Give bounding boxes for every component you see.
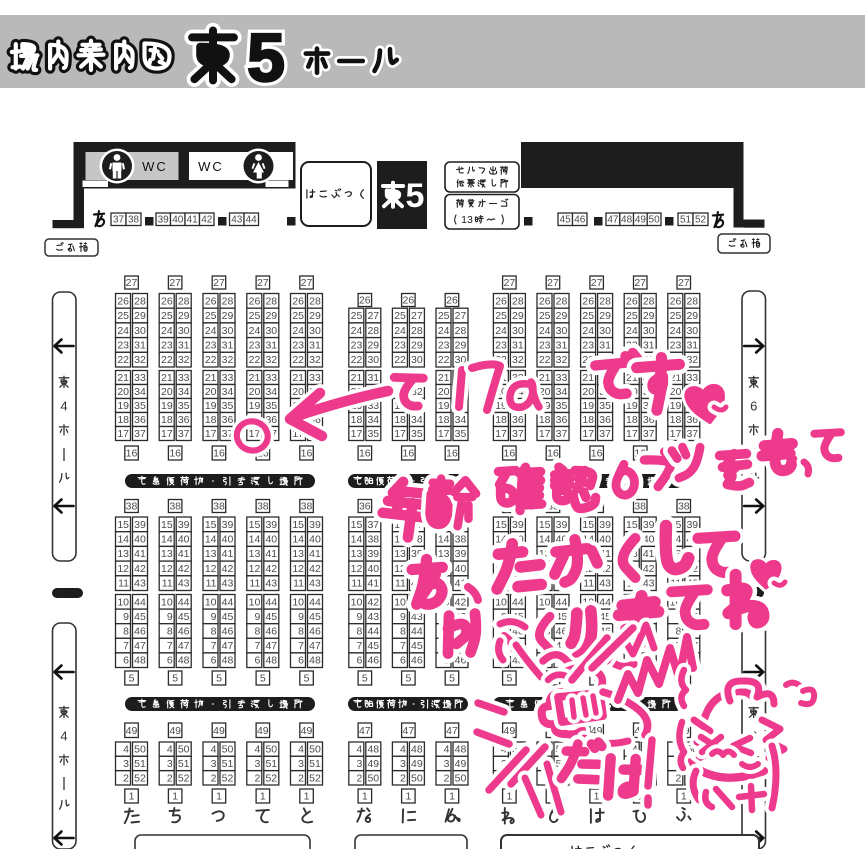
svg-text:29: 29 — [599, 310, 611, 322]
svg-text:45: 45 — [309, 611, 321, 623]
svg-text:37: 37 — [113, 214, 125, 225]
svg-text:28: 28 — [556, 295, 568, 307]
svg-text:5: 5 — [406, 177, 425, 215]
svg-text:8: 8 — [211, 626, 217, 638]
svg-text:38: 38 — [169, 501, 181, 513]
svg-text:18: 18 — [351, 414, 363, 426]
svg-text:40: 40 — [599, 534, 611, 546]
svg-text:51: 51 — [265, 758, 277, 770]
svg-text:1: 1 — [172, 791, 178, 803]
svg-text:41: 41 — [178, 548, 190, 560]
svg-text:44: 44 — [411, 626, 423, 638]
svg-text:43: 43 — [231, 214, 243, 225]
svg-text:11: 11 — [351, 578, 362, 590]
svg-text:36: 36 — [599, 414, 611, 426]
svg-text:17: 17 — [495, 428, 507, 440]
svg-text:46: 46 — [134, 626, 146, 638]
svg-text:39: 39 — [556, 519, 568, 531]
svg-text:2: 2 — [167, 772, 173, 784]
svg-text:26: 26 — [539, 295, 551, 307]
svg-text:7: 7 — [167, 640, 173, 652]
svg-text:43: 43 — [134, 578, 146, 590]
svg-text:18: 18 — [438, 414, 450, 426]
svg-text:19: 19 — [582, 400, 594, 412]
svg-text:49: 49 — [169, 725, 181, 737]
svg-text:28: 28 — [512, 295, 524, 307]
svg-text:26: 26 — [359, 295, 371, 307]
svg-text:5: 5 — [129, 673, 135, 685]
svg-text:26: 26 — [161, 295, 173, 307]
svg-text:23: 23 — [117, 340, 129, 352]
svg-text:21: 21 — [539, 372, 551, 384]
svg-text:10: 10 — [161, 596, 173, 608]
svg-text:26: 26 — [403, 295, 415, 307]
svg-text:47: 47 — [178, 640, 190, 652]
svg-text:48: 48 — [411, 744, 423, 756]
svg-text:3: 3 — [211, 758, 217, 770]
svg-text:28: 28 — [455, 325, 467, 337]
svg-text:39: 39 — [178, 519, 190, 531]
svg-text:27: 27 — [411, 310, 423, 322]
svg-text:39: 39 — [512, 519, 524, 531]
svg-text:30: 30 — [265, 325, 277, 337]
svg-text:38: 38 — [678, 501, 690, 513]
svg-text:19: 19 — [670, 400, 682, 412]
svg-text:26: 26 — [205, 295, 217, 307]
svg-text:38: 38 — [634, 501, 646, 513]
svg-text:9: 9 — [123, 611, 129, 623]
svg-text:20: 20 — [161, 386, 173, 398]
svg-text:45: 45 — [134, 611, 146, 623]
svg-text:31: 31 — [599, 340, 611, 352]
svg-text:46: 46 — [574, 214, 586, 225]
svg-text:44: 44 — [178, 596, 190, 608]
svg-text:46: 46 — [309, 626, 321, 638]
svg-text:7: 7 — [211, 640, 217, 652]
svg-text:18: 18 — [539, 414, 551, 426]
svg-text:24: 24 — [205, 325, 217, 337]
svg-text:50: 50 — [134, 744, 146, 756]
svg-text:48: 48 — [134, 655, 146, 667]
svg-text:42: 42 — [222, 563, 234, 575]
svg-text:17: 17 — [394, 428, 406, 440]
svg-text:23: 23 — [249, 340, 261, 352]
svg-text:29: 29 — [134, 310, 146, 322]
svg-text:27: 27 — [504, 277, 516, 289]
svg-text:30: 30 — [512, 325, 524, 337]
svg-text:42: 42 — [201, 214, 213, 225]
svg-text:7: 7 — [123, 640, 129, 652]
svg-text:5: 5 — [247, 20, 285, 96]
svg-text:18: 18 — [495, 414, 507, 426]
svg-text:27: 27 — [257, 277, 269, 289]
svg-text:7: 7 — [356, 640, 362, 652]
svg-text:9: 9 — [211, 611, 217, 623]
svg-text:37: 37 — [134, 428, 146, 440]
svg-text:30: 30 — [178, 325, 190, 337]
svg-text:31: 31 — [265, 340, 277, 352]
svg-text:29: 29 — [222, 310, 234, 322]
svg-text:10: 10 — [205, 596, 217, 608]
svg-text:19: 19 — [161, 400, 173, 412]
svg-text:46: 46 — [411, 655, 423, 667]
svg-text:30: 30 — [222, 325, 234, 337]
svg-text:2: 2 — [211, 772, 217, 784]
svg-text:25: 25 — [670, 310, 682, 322]
svg-text:23: 23 — [161, 340, 173, 352]
svg-text:20: 20 — [438, 386, 450, 398]
svg-text:31: 31 — [222, 340, 234, 352]
svg-text:52: 52 — [265, 772, 277, 784]
svg-text:47: 47 — [222, 640, 234, 652]
svg-text:1: 1 — [681, 791, 687, 803]
svg-text:17: 17 — [539, 428, 551, 440]
svg-text:29: 29 — [309, 310, 321, 322]
svg-text:40: 40 — [222, 534, 234, 546]
svg-text:26: 26 — [495, 295, 507, 307]
svg-text:20: 20 — [117, 386, 129, 398]
svg-text:12: 12 — [351, 563, 363, 575]
svg-text:15: 15 — [539, 519, 551, 531]
svg-text:25: 25 — [394, 310, 406, 322]
svg-text:25: 25 — [161, 310, 173, 322]
svg-text:13: 13 — [394, 548, 406, 560]
svg-text:37: 37 — [599, 428, 611, 440]
svg-text:48: 48 — [222, 655, 234, 667]
svg-text:48: 48 — [621, 214, 633, 225]
svg-text:28: 28 — [599, 295, 611, 307]
svg-text:37: 37 — [686, 428, 698, 440]
svg-text:15: 15 — [292, 519, 304, 531]
svg-text:28: 28 — [265, 295, 277, 307]
svg-text:42: 42 — [265, 563, 277, 575]
svg-text:9: 9 — [254, 611, 260, 623]
svg-text:46: 46 — [178, 626, 190, 638]
svg-text:32: 32 — [178, 354, 190, 366]
svg-text:WC: WC — [198, 159, 224, 174]
svg-text:11: 11 — [583, 578, 594, 590]
svg-text:51: 51 — [222, 758, 234, 770]
svg-text:34: 34 — [455, 414, 467, 426]
svg-text:49: 49 — [301, 725, 313, 737]
svg-text:17: 17 — [205, 428, 217, 440]
svg-text:22: 22 — [205, 354, 217, 366]
svg-text:16: 16 — [359, 448, 371, 460]
svg-text:22: 22 — [394, 354, 406, 366]
svg-text:39: 39 — [643, 519, 655, 531]
svg-text:4: 4 — [356, 744, 362, 756]
svg-text:21: 21 — [438, 372, 450, 384]
svg-text:18: 18 — [205, 414, 217, 426]
svg-text:26: 26 — [292, 295, 304, 307]
svg-text:37: 37 — [512, 428, 524, 440]
svg-text:25: 25 — [495, 310, 507, 322]
svg-text:5: 5 — [260, 673, 266, 685]
svg-text:13: 13 — [117, 548, 129, 560]
svg-text:26: 26 — [117, 295, 129, 307]
svg-text:14: 14 — [351, 534, 363, 546]
svg-text:41: 41 — [309, 548, 321, 560]
svg-text:16: 16 — [446, 448, 458, 460]
svg-text:1: 1 — [216, 791, 222, 803]
svg-text:27: 27 — [591, 277, 603, 289]
svg-text:27: 27 — [455, 310, 467, 322]
svg-text:30: 30 — [134, 325, 146, 337]
svg-text:28: 28 — [178, 295, 190, 307]
svg-text:12: 12 — [205, 563, 217, 575]
svg-text:25: 25 — [292, 310, 304, 322]
svg-text:4: 4 — [60, 729, 67, 744]
svg-text:19: 19 — [249, 400, 261, 412]
svg-text:46: 46 — [222, 626, 234, 638]
svg-text:13: 13 — [461, 214, 473, 226]
svg-text:3: 3 — [298, 758, 304, 770]
svg-text:23: 23 — [292, 340, 304, 352]
svg-text:4: 4 — [167, 744, 173, 756]
svg-text:5: 5 — [216, 673, 222, 685]
svg-text:34: 34 — [134, 386, 146, 398]
svg-text:17: 17 — [438, 428, 450, 440]
svg-text:16: 16 — [126, 448, 138, 460]
svg-text:40: 40 — [367, 563, 379, 575]
svg-text:31: 31 — [643, 340, 655, 352]
svg-text:42: 42 — [643, 563, 655, 575]
svg-text:4: 4 — [254, 744, 260, 756]
svg-text:35: 35 — [222, 400, 234, 412]
svg-text:5: 5 — [172, 673, 178, 685]
svg-text:12: 12 — [117, 563, 129, 575]
svg-text:15: 15 — [205, 519, 217, 531]
svg-text:14: 14 — [249, 534, 261, 546]
svg-text:21: 21 — [292, 372, 304, 384]
svg-text:24: 24 — [495, 325, 507, 337]
svg-text:52: 52 — [134, 772, 146, 784]
svg-text:44: 44 — [222, 596, 234, 608]
svg-text:17: 17 — [117, 428, 129, 440]
svg-text:23: 23 — [205, 340, 217, 352]
svg-text:49: 49 — [367, 758, 379, 770]
svg-text:34: 34 — [556, 386, 568, 398]
svg-text:31: 31 — [686, 340, 698, 352]
svg-text:31: 31 — [178, 340, 190, 352]
svg-text:44: 44 — [246, 214, 258, 225]
svg-text:47: 47 — [265, 640, 277, 652]
svg-text:39: 39 — [599, 519, 611, 531]
svg-text:23: 23 — [394, 339, 406, 351]
svg-text:11: 11 — [395, 578, 406, 590]
svg-text:34: 34 — [265, 386, 277, 398]
svg-text:6: 6 — [254, 655, 260, 667]
svg-text:17: 17 — [670, 428, 682, 440]
svg-text:38: 38 — [367, 534, 379, 546]
svg-text:24: 24 — [582, 325, 594, 337]
svg-text:23: 23 — [351, 339, 363, 351]
svg-text:28: 28 — [134, 295, 146, 307]
svg-text:1: 1 — [405, 791, 411, 803]
svg-text:3: 3 — [444, 758, 450, 770]
svg-text:28: 28 — [222, 295, 234, 307]
svg-text:35: 35 — [455, 428, 467, 440]
svg-text:48: 48 — [265, 655, 277, 667]
svg-text:44: 44 — [556, 596, 568, 608]
svg-text:24: 24 — [117, 325, 129, 337]
svg-text:22: 22 — [249, 354, 261, 366]
svg-text:43: 43 — [367, 611, 379, 623]
svg-text:5: 5 — [304, 673, 310, 685]
svg-text:2: 2 — [444, 772, 450, 784]
svg-text:38: 38 — [128, 214, 140, 225]
svg-text:25: 25 — [438, 310, 450, 322]
svg-text:38: 38 — [455, 534, 467, 546]
svg-text:35: 35 — [134, 400, 146, 412]
svg-text:32: 32 — [309, 354, 321, 366]
svg-text:45: 45 — [222, 611, 234, 623]
svg-text:6: 6 — [167, 655, 173, 667]
svg-text:26: 26 — [249, 295, 261, 307]
svg-text:27: 27 — [126, 277, 138, 289]
svg-text:21: 21 — [249, 372, 261, 384]
svg-text:47: 47 — [134, 640, 146, 652]
svg-text:19: 19 — [117, 400, 129, 412]
svg-text:38: 38 — [257, 501, 269, 513]
svg-text:15: 15 — [249, 519, 261, 531]
svg-text:36: 36 — [134, 414, 146, 426]
svg-text:11: 11 — [249, 578, 260, 590]
svg-text:6: 6 — [750, 399, 757, 414]
svg-text:8: 8 — [356, 626, 362, 638]
svg-text:52: 52 — [695, 214, 707, 225]
svg-text:49: 49 — [635, 214, 647, 225]
svg-text:22: 22 — [539, 354, 551, 366]
svg-text:4: 4 — [298, 744, 304, 756]
svg-text:31: 31 — [556, 340, 568, 352]
svg-text:50: 50 — [309, 744, 321, 756]
svg-text:23: 23 — [539, 340, 551, 352]
svg-text:42: 42 — [178, 563, 190, 575]
svg-text:39: 39 — [158, 214, 170, 225]
svg-text:47: 47 — [309, 640, 321, 652]
svg-text:30: 30 — [556, 325, 568, 337]
svg-text:6: 6 — [211, 655, 217, 667]
svg-text:43: 43 — [178, 578, 190, 590]
svg-text:29: 29 — [455, 339, 467, 351]
svg-text:45: 45 — [178, 611, 190, 623]
svg-text:19: 19 — [438, 400, 450, 412]
svg-text:39: 39 — [222, 519, 234, 531]
svg-text:28: 28 — [411, 325, 423, 337]
svg-text:5: 5 — [449, 673, 455, 685]
svg-text:15: 15 — [351, 519, 363, 531]
svg-text:43: 43 — [222, 578, 234, 590]
svg-text:15: 15 — [117, 519, 129, 531]
svg-text:50: 50 — [411, 772, 423, 784]
svg-text:24: 24 — [351, 325, 363, 337]
svg-text:43: 43 — [265, 578, 277, 590]
svg-text:14: 14 — [292, 534, 304, 546]
svg-text:2: 2 — [298, 772, 304, 784]
svg-text:11: 11 — [118, 578, 129, 590]
svg-text:21: 21 — [161, 372, 173, 384]
svg-text:41: 41 — [187, 214, 199, 225]
svg-text:45: 45 — [367, 640, 379, 652]
svg-text:10: 10 — [351, 596, 363, 608]
svg-text:45: 45 — [265, 611, 277, 623]
svg-text:34: 34 — [222, 386, 234, 398]
svg-text:25: 25 — [539, 310, 551, 322]
svg-text:29: 29 — [411, 339, 423, 351]
svg-text:27: 27 — [301, 277, 313, 289]
svg-text:12: 12 — [161, 563, 173, 575]
svg-text:40: 40 — [265, 534, 277, 546]
svg-text:48: 48 — [455, 744, 467, 756]
svg-text:7: 7 — [400, 640, 406, 652]
svg-text:33: 33 — [178, 372, 190, 384]
svg-text:33: 33 — [309, 372, 321, 384]
svg-text:35: 35 — [265, 400, 277, 412]
svg-text:23: 23 — [438, 339, 450, 351]
svg-text:30: 30 — [643, 325, 655, 337]
svg-text:39: 39 — [367, 548, 379, 560]
svg-text:42: 42 — [309, 563, 321, 575]
svg-text:52: 52 — [178, 772, 190, 784]
svg-text:37: 37 — [643, 428, 655, 440]
svg-text:36: 36 — [178, 414, 190, 426]
svg-text:33: 33 — [265, 372, 277, 384]
svg-text:18: 18 — [670, 414, 682, 426]
svg-text:42: 42 — [367, 596, 379, 608]
svg-text:29: 29 — [556, 310, 568, 322]
svg-text:15: 15 — [161, 519, 173, 531]
svg-text:25: 25 — [351, 310, 363, 322]
svg-text:18: 18 — [626, 414, 638, 426]
svg-text:6: 6 — [400, 655, 406, 667]
svg-text:49: 49 — [213, 725, 225, 737]
svg-text:40: 40 — [455, 563, 467, 575]
svg-text:28: 28 — [643, 295, 655, 307]
svg-text:47: 47 — [359, 725, 371, 737]
svg-text:26: 26 — [670, 295, 682, 307]
svg-text:36: 36 — [556, 414, 568, 426]
svg-text:33: 33 — [222, 372, 234, 384]
svg-text:27: 27 — [367, 310, 379, 322]
svg-text:14: 14 — [161, 534, 173, 546]
svg-text:29: 29 — [367, 339, 379, 351]
svg-text:37: 37 — [556, 428, 568, 440]
svg-text:51: 51 — [178, 758, 190, 770]
svg-text:32: 32 — [222, 354, 234, 366]
svg-text:49: 49 — [411, 758, 423, 770]
svg-text:24: 24 — [626, 325, 638, 337]
svg-text:27: 27 — [169, 277, 181, 289]
svg-text:35: 35 — [367, 428, 379, 440]
svg-text:39: 39 — [455, 548, 467, 560]
svg-text:24: 24 — [670, 325, 682, 337]
svg-text:5: 5 — [362, 673, 368, 685]
svg-text:35: 35 — [178, 400, 190, 412]
svg-text:13: 13 — [249, 548, 261, 560]
svg-text:41: 41 — [222, 548, 234, 560]
svg-text:29: 29 — [512, 310, 524, 322]
svg-text:49: 49 — [455, 758, 467, 770]
svg-text:35: 35 — [599, 400, 611, 412]
svg-text:10: 10 — [117, 596, 129, 608]
svg-text:47: 47 — [607, 214, 619, 225]
svg-text:10: 10 — [249, 596, 261, 608]
svg-text:15: 15 — [495, 519, 507, 531]
svg-text:16: 16 — [547, 448, 559, 460]
svg-text:17: 17 — [161, 428, 173, 440]
svg-text:34: 34 — [367, 414, 379, 426]
